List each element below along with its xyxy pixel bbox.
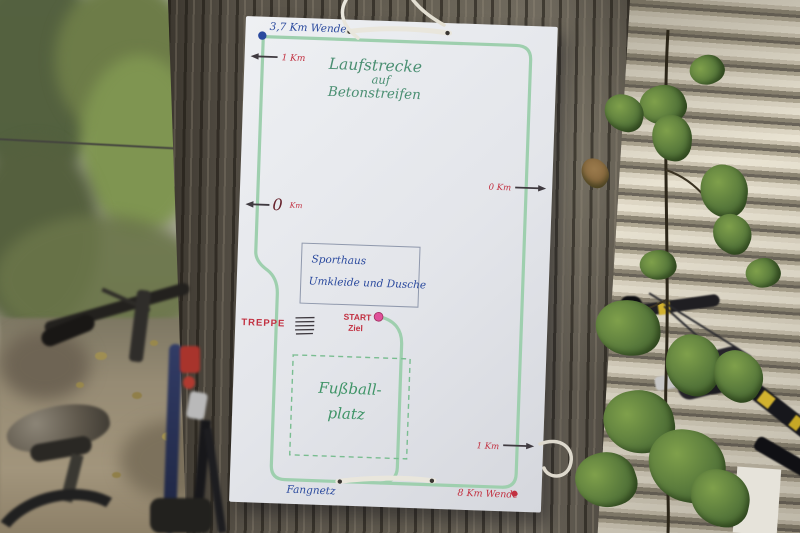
marker-0km-left: 0 Km: [272, 195, 303, 215]
bike-red-part: [183, 376, 195, 389]
sporthaus-line1: Sporthaus: [311, 253, 367, 267]
turnpoint-dot-blue: [258, 31, 267, 40]
bike-brake-caliper: [186, 391, 208, 421]
sporthaus-line2: Umkleide und Dusche: [309, 275, 427, 291]
marker-line: [503, 445, 529, 446]
photo-scene: 3,7 Km Wende 1 Km Laufstrecke auf Betons…: [0, 0, 800, 533]
bike-crank: [150, 498, 212, 533]
bicycles-left: [0, 270, 260, 533]
marker-1km-left: 1 Km: [281, 53, 305, 64]
plant-sapling: [556, 0, 800, 533]
start-dot-pink: [374, 312, 383, 321]
marker-0km-right: 0 Km: [488, 183, 511, 194]
hanging-cord-top: [318, 0, 488, 42]
turn-label-8km: 8 Km Wende: [457, 488, 518, 501]
arrowhead-right: [538, 185, 546, 192]
marker-1km-right: 1 Km: [476, 441, 499, 452]
football-line2: platz: [327, 404, 365, 423]
title-line3: Betonstreifen: [327, 84, 421, 103]
ziel-label: Ziel: [348, 323, 363, 334]
treppe-label: TREPPE: [241, 317, 285, 330]
route-line: [248, 37, 531, 488]
fangnetz-label: Fangnetz: [285, 484, 336, 498]
start-label: START: [343, 312, 372, 323]
football-line1: Fußball-: [317, 379, 382, 399]
cord-bottom-right: [534, 436, 580, 482]
course-map-sign: 3,7 Km Wende 1 Km Laufstrecke auf Betons…: [229, 16, 558, 513]
course-map: 3,7 Km Wende 1 Km Laufstrecke auf Betons…: [229, 16, 558, 513]
arrowhead-left: [250, 53, 258, 60]
stairs-icon: [295, 317, 315, 335]
arrowhead-left: [245, 201, 253, 208]
bike-red-reflector: [180, 346, 200, 373]
marker-line: [515, 187, 541, 188]
